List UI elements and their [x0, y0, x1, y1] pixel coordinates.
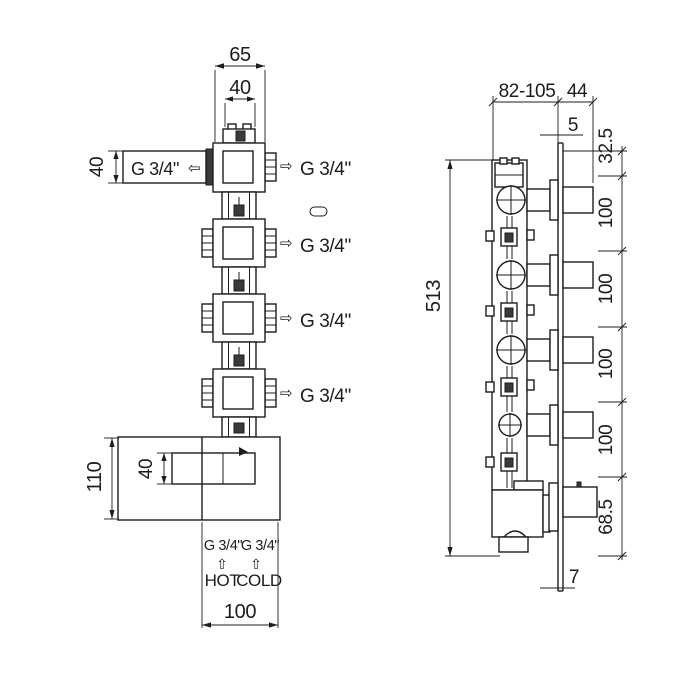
hot-thread-label: G 3/4"	[204, 538, 242, 554]
outlet-labels: ⇨ G 3/4" ⇨ G 3/4" ⇨ G 3/4" ⇨ G 3/4"	[280, 157, 351, 407]
side-dim-total-height: 513	[423, 160, 500, 556]
body-connector	[222, 192, 256, 219]
dim-bottom-offset-label: 68.5	[596, 499, 617, 534]
technical-drawing-canvas: 65 40	[0, 0, 700, 700]
inlet-pipe: G 3/4" ⇦	[123, 151, 206, 183]
valve-body	[206, 143, 276, 192]
dim-handle-depth-label: 44	[567, 81, 588, 102]
dim-total-height-label: 513	[423, 280, 445, 312]
dim-spacing-label: 100	[596, 349, 617, 380]
outlet-arrow-icon: ⇨	[280, 384, 293, 402]
body-connector	[222, 417, 256, 437]
front-view: 65 40	[84, 44, 351, 628]
outlet-arrow-icon: ⇨	[280, 309, 293, 327]
cold-label: COLD	[236, 571, 282, 590]
front-dim-box-height: 110	[84, 438, 119, 519]
valve-body	[202, 369, 276, 417]
wall-plate	[558, 143, 563, 591]
front-dim-inlet: 40	[87, 151, 123, 183]
body-connector	[222, 342, 256, 369]
dim-plate-top-label: 5	[568, 115, 578, 136]
dim-cartridge-label: 40	[136, 459, 157, 479]
side-dim-plate-top: 5	[540, 115, 583, 136]
thermostat-block	[492, 481, 556, 552]
hot-label: HOT	[205, 571, 240, 590]
handle	[527, 330, 593, 370]
outlet-label: G 3/4"	[300, 159, 351, 180]
slot-marker	[310, 207, 327, 216]
handle	[527, 255, 593, 295]
dim-spacing-label: 100	[596, 425, 617, 456]
top-connector	[223, 124, 255, 143]
body-connector	[222, 267, 256, 294]
outlet-label: G 3/4"	[300, 236, 351, 257]
outlet-arrow-icon: ⇨	[280, 157, 293, 175]
dim-box-width-label: 100	[224, 601, 256, 623]
outlet-label: G 3/4"	[300, 311, 351, 332]
handle	[527, 405, 593, 445]
dim-inlet-label: 40	[87, 157, 108, 177]
thermostat-handle	[549, 482, 597, 531]
outlet-label: G 3/4"	[300, 386, 351, 407]
dim-box-height-label: 110	[84, 461, 106, 492]
dim-spacing-label: 100	[596, 198, 617, 229]
valve-body	[202, 294, 276, 342]
inlet-direction-arrow-icon: ⇦	[188, 159, 201, 177]
valve-installation-drawing: 65 40	[0, 0, 700, 700]
dim-plate-bottom-label: 7	[569, 567, 579, 588]
side-view: 82-105 44 5	[423, 81, 627, 591]
front-dim-connector-width: 40	[225, 77, 255, 127]
dim-body-width-label: 65	[229, 44, 251, 66]
dim-depth-range-label: 82-105	[499, 81, 556, 102]
outlet-arrow-icon: ⇨	[280, 234, 293, 252]
dim-connector-width-label: 40	[229, 77, 251, 99]
handle	[527, 180, 593, 220]
dim-spacing-label: 100	[596, 274, 617, 305]
cold-thread-label: G 3/4"	[241, 538, 279, 554]
supply-labels: G 3/4" G 3/4" ⇧ ⇧ HOT COLD	[204, 538, 282, 590]
side-dim-plate-bottom: 7	[540, 567, 579, 588]
valve-body	[202, 219, 276, 267]
dim-top-offset-label: 32.5	[596, 128, 617, 163]
inlet-thread-label: G 3/4"	[131, 159, 179, 179]
